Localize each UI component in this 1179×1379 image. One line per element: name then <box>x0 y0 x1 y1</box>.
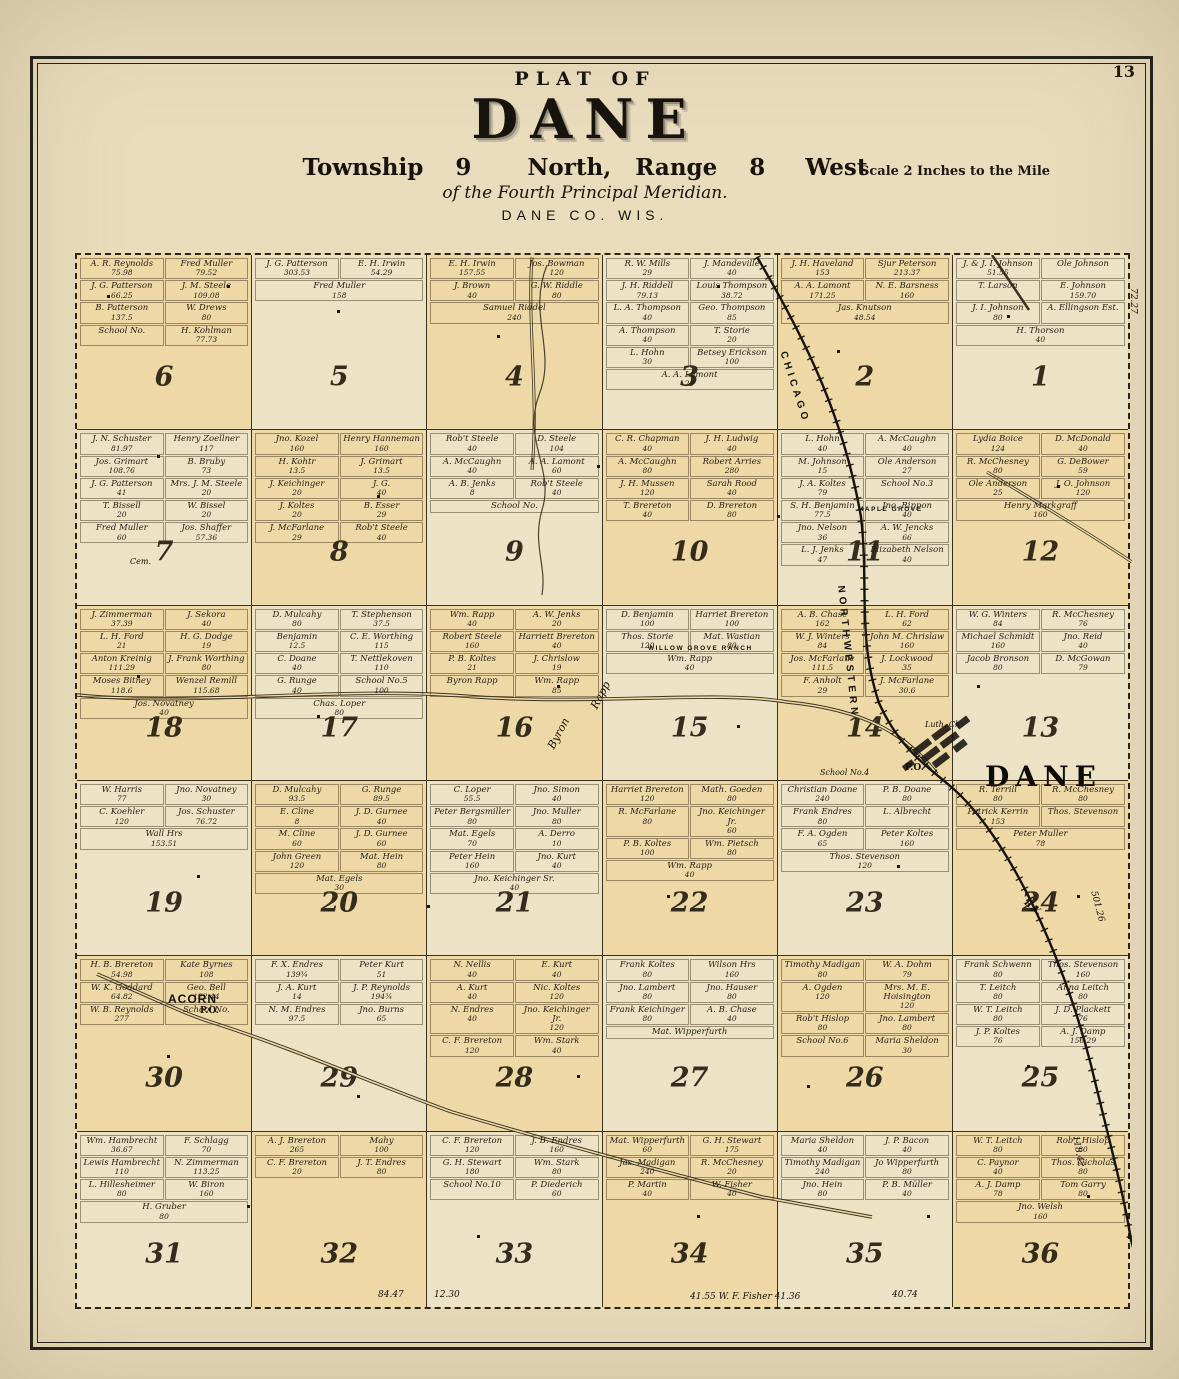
parcel-acres: 40 <box>959 336 1122 344</box>
section-parcels: J. N. Schuster81.97Henry Zoellner117Jos.… <box>80 433 248 601</box>
parcel-acres: 40 <box>343 818 421 826</box>
parcel: E. Kurt40 <box>515 959 599 980</box>
parcel-acres: 160 <box>868 840 946 848</box>
parcel-acres: 40 <box>433 884 595 892</box>
parcel-acres: 78 <box>959 840 1122 848</box>
parcel-acres: 280 <box>693 467 771 475</box>
parcel: Wall Hrs153.51 <box>80 828 248 849</box>
parcel-acres: 79.13 <box>609 292 687 300</box>
section-14: A. B. Chase162L. H. Ford62W. J. Winters8… <box>778 606 953 781</box>
parcel: W. Harris77 <box>80 784 164 805</box>
parcel: L. H. Ford62 <box>865 609 949 630</box>
parcel: Ole Anderson27 <box>865 456 949 477</box>
parcel: Harriet Brereton120 <box>606 784 690 805</box>
parcel: Maria Sheldon40 <box>781 1135 865 1156</box>
section-1: J. & J. I. Johnson51.55Ole JohnsonT. Lar… <box>953 255 1128 430</box>
parcel: Jno. Hein80 <box>781 1179 865 1200</box>
section-28: N. Nellis40E. Kurt40A. Kurt40Nic. Koltes… <box>427 956 602 1131</box>
parcel-acres: 40 <box>518 862 596 870</box>
parcel: Mrs. M. E. Hoisington120 <box>865 982 949 1013</box>
parcel-acres: 160 <box>959 642 1037 650</box>
parcel-acres: 80 <box>693 993 771 1001</box>
parcel: School No.6 <box>781 1035 865 1056</box>
parcel-acres: 40 <box>518 489 596 497</box>
parcel-acres: 20 <box>518 620 596 628</box>
parcel: P. B. Müller40 <box>865 1179 949 1200</box>
section-parcels: L. Hohn40A. McCaughn40M. Johnson15Ole An… <box>781 433 949 601</box>
parcel-acres: 10 <box>518 840 596 848</box>
parcel: Frank Koltes80 <box>606 959 690 980</box>
parcel-acres: 40 <box>868 556 946 564</box>
parcel-acres: 8 <box>258 818 336 826</box>
parcel: Henry Markgraff160 <box>956 500 1125 521</box>
parcel: J. H. Haveland153 <box>781 258 865 279</box>
parcel-acres: 20 <box>168 511 246 519</box>
parcel-acres: 160 <box>1044 971 1122 979</box>
parcel-acres: 73 <box>168 467 246 475</box>
parcel: A. W. Jenks20 <box>515 609 599 630</box>
parcel-acres: 93.5 <box>258 795 336 803</box>
parcel: Moses Bitney118.6 <box>80 675 164 696</box>
parcel: Jno. Lambert80 <box>606 982 690 1003</box>
parcel-acres: 80 <box>518 292 596 300</box>
parcel: Elizabeth Nelson40 <box>865 544 949 565</box>
section-parcels: Wm. Hambrecht36.67F. Schlagg70Lewis Hamb… <box>80 1135 248 1304</box>
parcel-acres: 120 <box>433 1146 511 1154</box>
parcel-acres: 110 <box>83 1168 161 1176</box>
plat-map-sheet: 13 PLAT OF DANE Township 9 North, Range … <box>0 0 1179 1379</box>
parcel: Mahy100 <box>340 1135 424 1156</box>
parcel-acres: 84 <box>959 620 1037 628</box>
parcel: J. Zimmerman37.39 <box>80 609 164 630</box>
parcel-acres: 60 <box>518 467 596 475</box>
section-13: W. G. Winters84R. McChesney76Michael Sch… <box>953 606 1128 781</box>
parcel-acres: 40 <box>433 1015 511 1023</box>
parcel-acres: 303.53 <box>258 269 336 277</box>
parcel: J. O. Johnson120 <box>1041 478 1125 499</box>
parcel: A. J. Damp156.29 <box>1041 1026 1125 1047</box>
parcel-acres: 41 <box>83 489 161 497</box>
page-title: DANE <box>255 92 915 146</box>
parcel: Christian Doane240 <box>781 784 865 805</box>
parcel: E. Johnson159.70 <box>1041 280 1125 301</box>
parcel-acres: 160 <box>168 1190 246 1198</box>
section-17: D. Mulcahy80T. Stephenson37.5Benjamin12.… <box>252 606 427 781</box>
parcel-acres: 80 <box>1044 1146 1122 1154</box>
parcel-acres: 120 <box>784 993 862 1001</box>
parcel-acres: 29 <box>784 687 862 695</box>
section-parcels: J. H. Haveland153Sjur Peterson213.37A. A… <box>781 258 949 426</box>
parcel: W. B. Reynolds277 <box>80 1004 164 1025</box>
parcel: T. Larson <box>956 280 1040 301</box>
parcel: J. Sekora40 <box>165 609 249 630</box>
parcel: L. H. Ford21 <box>80 631 164 652</box>
parcel: Byron Rapp <box>430 675 514 696</box>
parcel: Thos. Storie120 <box>606 631 690 652</box>
section-parcels: H. B. Brereton54.98Kate Byrnes108W. K. G… <box>80 959 248 1127</box>
parcel-acres: 120 <box>868 1002 946 1010</box>
parcel-acres: 80 <box>959 1146 1037 1154</box>
parcel: L. J. Jenks47 <box>781 544 865 565</box>
parcel-acres: 115.68 <box>168 687 246 695</box>
parcel-acres: 80 <box>1044 1190 1122 1198</box>
parcel: W. G. Winters84 <box>956 609 1040 630</box>
parcel-owner: School No.10 <box>433 1181 511 1190</box>
parcel: Ole Anderson25 <box>956 478 1040 499</box>
parcel: Thos. Stevenson <box>1041 806 1125 827</box>
section-35: Maria Sheldon40J. P. Bacon40Timothy Madi… <box>778 1132 953 1307</box>
parcel: Peter Hein160 <box>430 851 514 872</box>
parcel-acres: 80 <box>693 849 771 857</box>
parcel-acres: 81.97 <box>83 445 161 453</box>
section-5: J. G. Patterson303.53E. H. Irwin54.29Fre… <box>252 255 427 430</box>
parcel: Jno. Simon40 <box>515 784 599 805</box>
parcel: G. H. Stewart180 <box>430 1157 514 1178</box>
parcel-acres: 40 <box>693 269 771 277</box>
section-parcels: R. Terrill80R. McChesney80Patrick Kerrin… <box>956 784 1125 952</box>
parcel: Mat. Egels70 <box>430 828 514 849</box>
parcel-acres: 13.5 <box>258 467 336 475</box>
parcel-acres: 75.98 <box>83 269 161 277</box>
parcel: Timothy Madigan80 <box>781 959 865 980</box>
section-11: L. Hohn40A. McCaughn40M. Johnson15Ole An… <box>778 430 953 605</box>
parcel: Jno. Reid40 <box>1041 631 1125 652</box>
parcel: A. Thompson40 <box>606 325 690 346</box>
parcel-acres: 20 <box>258 511 336 519</box>
parcel-acres: 40 <box>609 871 771 879</box>
parcel: H. Kohtr13.5 <box>255 456 339 477</box>
parcel: Mat. Wipperfurth <box>606 1026 774 1039</box>
parcel-acres: 29 <box>609 269 687 277</box>
parcel: Jos. Novatney40 <box>80 698 248 719</box>
parcel-acres: 40 <box>1044 642 1122 650</box>
parcel: Jno. Muller80 <box>515 806 599 827</box>
parcel: Wm. Rapp40 <box>606 860 774 881</box>
parcel-acres: 175 <box>693 1146 771 1154</box>
parcel-acres: 20 <box>258 1168 336 1176</box>
parcel: Wm. Rapp85 <box>515 675 599 696</box>
parcel-acres: 77.73 <box>168 336 246 344</box>
parcel-acres: 110 <box>343 664 421 672</box>
parcel: M. Johnson15 <box>781 456 865 477</box>
parcel-acres: 159.70 <box>1044 292 1122 300</box>
parcel-acres: 180 <box>433 1168 511 1176</box>
parcel-acres: 80 <box>83 1213 245 1221</box>
section-parcels: R. W. Mills29J. Mandeville40J. H. Riddel… <box>606 258 774 426</box>
parcel: D. Brereton80 <box>690 500 774 521</box>
parcel-acres: 158 <box>258 292 420 300</box>
parcel: Jno. Kurt40 <box>515 851 599 872</box>
parcel-acres: 79 <box>1044 664 1122 672</box>
parcel-acres: 40 <box>518 795 596 803</box>
parcel: H. Kohlman77.73 <box>165 325 249 346</box>
parcel-acres: 76 <box>1044 1015 1122 1023</box>
parcel-acres: 40 <box>609 511 687 519</box>
parcel-acres: 240 <box>433 314 595 322</box>
parcel: Wilson Hrs160 <box>690 959 774 980</box>
parcel: W. J. Winters84 <box>781 631 865 652</box>
parcel-acres: 77.5 <box>784 511 862 519</box>
parcel: T. Storie20 <box>690 325 774 346</box>
parcel: Jno. Hauser80 <box>690 982 774 1003</box>
parcel-acres: 30.6 <box>868 687 946 695</box>
parcel: A. McCaughn40 <box>430 456 514 477</box>
parcel: C. Koehler120 <box>80 806 164 827</box>
parcel-acres: 80 <box>959 664 1037 672</box>
section-parcels: Lydia Boice124D. McDonald40R. McChesney8… <box>956 433 1125 601</box>
parcel-acres: 40 <box>784 1146 862 1154</box>
parcel: A. McCaughn80 <box>606 456 690 477</box>
parcel: J. N. Schuster81.97 <box>80 433 164 454</box>
parcel-acres: 156.29 <box>1044 1037 1122 1045</box>
parcel-acres: 80 <box>959 971 1037 979</box>
parcel-acres: 60 <box>609 1146 687 1154</box>
parcel-acres: 70 <box>433 840 511 848</box>
parcel-acres: 115 <box>343 642 421 650</box>
parcel: Jas. Knutson48.54 <box>781 302 949 323</box>
parcel-acres: 54.98 <box>83 971 161 979</box>
parcel: R. Terrill80 <box>956 784 1040 805</box>
parcel: W. A. Dohm79 <box>865 959 949 980</box>
parcel: Louis Thompson38.72 <box>690 280 774 301</box>
parcel: F. A. Ogden65 <box>781 828 865 849</box>
parcel: Robert Arries280 <box>690 456 774 477</box>
parcel: R. McChesney76 <box>1041 609 1125 630</box>
section-19: W. Harris77Jno. Novatney30C. Koehler120J… <box>77 781 252 956</box>
parcel: Benjamin12.5 <box>255 631 339 652</box>
parcel-acres: 80 <box>343 862 421 870</box>
parcel-acres: 160 <box>693 971 771 979</box>
parcel-acres: 100 <box>609 620 687 628</box>
parcel-acres: 65 <box>784 840 862 848</box>
section-2: J. H. Haveland153Sjur Peterson213.37A. A… <box>778 255 953 430</box>
section-29: F. X. Endres139¾Peter Kurt51J. A. Kurt14… <box>252 956 427 1131</box>
section-33: C. F. Brereton120J. B. Endres160G. H. St… <box>427 1132 602 1307</box>
parcel: Jos. Grimart108.76 <box>80 456 164 477</box>
parcel-acres: 79 <box>784 489 862 497</box>
parcel: W. Bissel20 <box>165 500 249 521</box>
parcel: M. Cline60 <box>255 828 339 849</box>
section-parcels: Christian Doane240P. B. Doane80Frank End… <box>781 784 949 952</box>
parcel: W. Drews80 <box>165 302 249 323</box>
section-parcels: Maria Sheldon40J. P. Bacon40Timothy Madi… <box>781 1135 949 1304</box>
parcel-acres: 40 <box>609 314 687 322</box>
section-31: Wm. Hambrecht36.67F. Schlagg70Lewis Hamb… <box>77 1132 252 1307</box>
parcel-acres: 80 <box>868 1024 946 1032</box>
section-23: Christian Doane240P. B. Doane80Frank End… <box>778 781 953 956</box>
section-parcels: Jno. Kozel160Henry Hanneman160H. Kohtr13… <box>255 433 423 601</box>
section-parcels: W. Harris77Jno. Novatney30C. Koehler120J… <box>80 784 248 952</box>
parcel-acres: 80 <box>959 314 1037 322</box>
parcel: A. McCaughn40 <box>865 433 949 454</box>
parcel: H. Gruber80 <box>80 1201 248 1222</box>
parcel-acres: 30 <box>609 358 687 366</box>
parcel: J. Brown40 <box>430 280 514 301</box>
parcel: Fred Muller158 <box>255 280 423 301</box>
parcel: Jno. Keichinger Jr.120 <box>515 1004 599 1035</box>
parcel: C. F. Brereton20 <box>255 1157 339 1178</box>
parcel-acres: 80 <box>168 314 246 322</box>
section-26: Timothy Madigan80W. A. Dohm79A. Ogden120… <box>778 956 953 1131</box>
parcel-acres: 12.5 <box>258 642 336 650</box>
parcel: J. P. Bacon40 <box>865 1135 949 1156</box>
parcel-acres: 40 <box>168 620 246 628</box>
parcel: Rob't Steele40 <box>340 522 424 543</box>
parcel: Jo Wipperfurth80 <box>865 1157 949 1178</box>
section-parcels: A. J. Brereton265Mahy100C. F. Brereton20… <box>255 1135 423 1304</box>
parcel-acres: 40 <box>518 642 596 650</box>
section-18: J. Zimmerman37.39J. Sekora40L. H. Ford21… <box>77 606 252 781</box>
parcel-acres: 277 <box>83 1015 161 1023</box>
parcel-acres: 80 <box>693 511 771 519</box>
section-3: R. W. Mills29J. Mandeville40J. H. Riddel… <box>603 255 778 430</box>
parcel-acres: 240 <box>784 1168 862 1176</box>
section-parcels: Mat. Wipperfurth60G. H. Stewart175Jas. M… <box>606 1135 774 1304</box>
parcel: L. Hohn40 <box>781 433 865 454</box>
parcel: Peter Muller78 <box>956 828 1125 849</box>
parcel-acres: 80 <box>258 620 336 628</box>
parcel-acres: 57.36 <box>168 534 246 542</box>
parcel: A. B. Jenks8 <box>430 478 514 499</box>
parcel: J. B. Endres160 <box>515 1135 599 1156</box>
parcel: J. H. Mussen120 <box>606 478 690 499</box>
section-parcels: W. G. Winters84R. McChesney76Michael Sch… <box>956 609 1125 777</box>
parcel: C. R. Chapman40 <box>606 433 690 454</box>
parcel: J. McFarlane30.6 <box>865 675 949 696</box>
parcel: J. A. Kurt14 <box>255 982 339 1003</box>
meridian-line: of the Fourth Principal Meridian. <box>255 183 915 203</box>
parcel: B. Esser29 <box>340 500 424 521</box>
section-parcels: Harriet Brereton120Math. Goeden80R. McFa… <box>606 784 774 952</box>
parcel-acres: 40 <box>518 971 596 979</box>
title-block: PLAT OF DANE Township 9 North, Range 8 W… <box>255 68 915 223</box>
parcel: Mat. Wipperfurth60 <box>606 1135 690 1156</box>
parcel-acres: 47 <box>784 556 862 564</box>
parcel: N. Nellis40 <box>430 959 514 980</box>
parcel-acres: 160 <box>959 1213 1122 1221</box>
parcel: Mat. Wastian80 <box>690 631 774 652</box>
parcel: Harriett Brereton40 <box>515 631 599 652</box>
parcel-acres: 40 <box>343 534 421 542</box>
parcel-acres: 40 <box>258 687 336 695</box>
parcel: R. McChesney20 <box>690 1157 774 1178</box>
parcel-acres: 19 <box>518 664 596 672</box>
parcel-acres: 40 <box>609 336 687 344</box>
parcel-acres: 29 <box>258 534 336 542</box>
parcel: A. A. Lamont60 <box>515 456 599 477</box>
parcel-acres: 20 <box>693 336 771 344</box>
parcel-owner: Byron Rapp <box>433 677 511 686</box>
parcel: School No.3 <box>865 478 949 499</box>
parcel: J. T. Endres80 <box>340 1157 424 1178</box>
parcel: J. D. Gurnee40 <box>340 806 424 827</box>
parcel: J. Koltes20 <box>255 500 339 521</box>
section-10: C. R. Chapman40J. H. Ludwig40A. McCaughn… <box>603 430 778 605</box>
parcel: Jno. Keichinger Jr.60 <box>690 806 774 837</box>
parcel: J. I. Johnson80 <box>956 302 1040 323</box>
section-30: H. B. Brereton54.98Kate Byrnes108W. K. G… <box>77 956 252 1131</box>
parcel-acres: 80 <box>1044 795 1122 803</box>
parcel-acres: 37.5 <box>343 620 421 628</box>
section-parcels: D. Benjamin100Harriet Brereton100Thos. S… <box>606 609 774 777</box>
parcel: W. Fisher40 <box>690 1179 774 1200</box>
section-parcels: Timothy Madigan80W. A. Dohm79A. Ogden120… <box>781 959 949 1127</box>
parcel: J. A. Koltes79 <box>781 478 865 499</box>
parcel-acres: 76 <box>959 1037 1037 1045</box>
parcel: W. T. Leitch80 <box>956 1135 1040 1156</box>
parcel-acres: 120 <box>433 1047 511 1055</box>
parcel-acres: 20 <box>258 489 336 497</box>
parcel-acres: 213.37 <box>868 269 946 277</box>
parcel: Frank Keichinger80 <box>606 1004 690 1025</box>
parcel: Jas. Madigan240 <box>606 1157 690 1178</box>
parcel-acres: 113.25 <box>168 1168 246 1176</box>
parcel-acres: 40 <box>609 445 687 453</box>
parcel: D. Mulcahy93.5 <box>255 784 339 805</box>
parcel-acres: 80 <box>258 709 420 717</box>
parcel-acres: 66 <box>868 534 946 542</box>
parcel-acres: 171.25 <box>784 292 862 300</box>
parcel: D. McGowan79 <box>1041 653 1125 674</box>
parcel-acres: 80 <box>609 993 687 1001</box>
parcel-acres: 240 <box>609 1168 687 1176</box>
parcel: J. McFarlane29 <box>255 522 339 543</box>
parcel-acres: 40 <box>868 1146 946 1154</box>
parcel-acres: 21 <box>83 642 161 650</box>
parcel-acres: 80 <box>433 818 511 826</box>
parcel-acres: 40 <box>433 620 511 628</box>
parcel: W. T. Leitch80 <box>956 1004 1040 1025</box>
parcel-acres: 40 <box>959 1168 1037 1176</box>
section-parcels: W. T. Leitch80Rob't Hislop80C. Paynor40T… <box>956 1135 1125 1304</box>
parcel: N. Endres40 <box>430 1004 514 1035</box>
parcel: J. G. Patterson41 <box>80 478 164 499</box>
parcel-owner: School No. <box>168 1006 246 1015</box>
parcel: Rob't Steele40 <box>430 433 514 454</box>
parcel: R. McChesney80 <box>956 456 1040 477</box>
parcel: P. B. Doane80 <box>865 784 949 805</box>
parcel-acres: 160 <box>433 642 511 650</box>
parcel: E. H. Irwin54.29 <box>340 258 424 279</box>
parcel-acres: 40 <box>433 445 511 453</box>
parcel: School No.5100 <box>340 675 424 696</box>
parcel: D. Mulcahy80 <box>255 609 339 630</box>
parcel-acres: 76.72 <box>168 818 246 826</box>
parcel-acres: 153.51 <box>83 840 245 848</box>
parcel: John Green120 <box>255 851 339 872</box>
parcel: T. Nettlekoven110 <box>340 653 424 674</box>
parcel-acres: 160 <box>258 445 336 453</box>
parcel: J. Lockwood35 <box>865 653 949 674</box>
parcel-acres: 160 <box>868 642 946 650</box>
parcel-acres: 40 <box>868 445 946 453</box>
parcel: G. DeBower59 <box>1041 456 1125 477</box>
parcel-acres: 153 <box>784 269 862 277</box>
parcel-acres: 40 <box>868 1190 946 1198</box>
parcel-acres: 100 <box>609 849 687 857</box>
parcel-acres: 80 <box>693 642 771 650</box>
parcel: Kate Byrnes108 <box>165 959 249 980</box>
sections-grid: A. R. Reynolds75.98Fred Muller79.52J. G.… <box>77 255 1128 1307</box>
parcel: E. H. Irwin157.55 <box>430 258 514 279</box>
section-parcels: C. F. Brereton120J. B. Endres160G. H. St… <box>430 1135 598 1304</box>
parcel-acres: 80 <box>784 971 862 979</box>
parcel-acres: 13.5 <box>343 467 421 475</box>
parcel-acres: 160 <box>433 862 511 870</box>
parcel-acres: 29 <box>609 380 771 388</box>
parcel-acres: 80 <box>1044 1168 1122 1176</box>
section-20: D. Mulcahy93.5G. Runge89.5E. Cline8J. D.… <box>252 781 427 956</box>
